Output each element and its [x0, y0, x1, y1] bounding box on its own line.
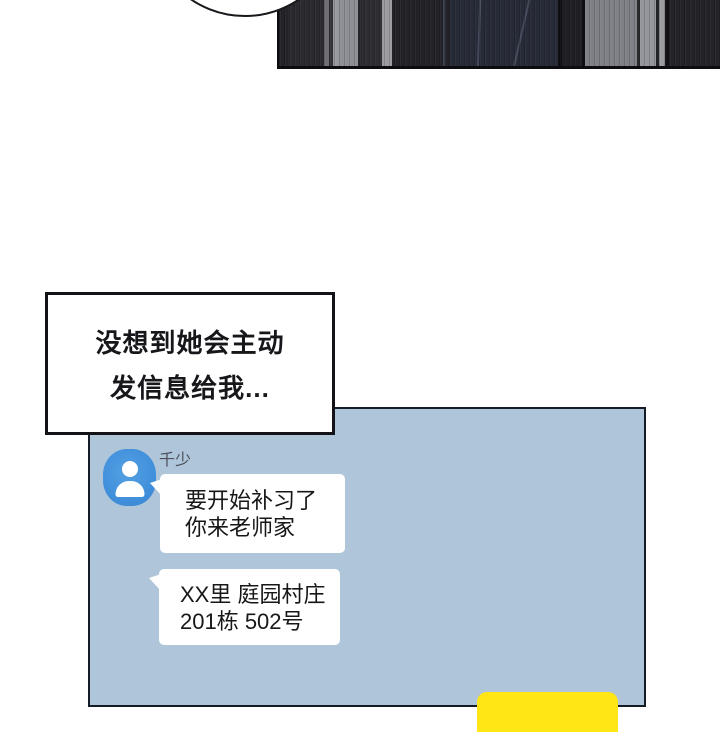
message-line: 要开始补习了 [185, 487, 345, 514]
sender-name: 千少 [159, 446, 191, 470]
chat-message-received: 要开始补习了 你来老师家 [160, 474, 345, 553]
person-icon-body [115, 481, 144, 497]
thought-line: 发信息给我... [48, 368, 332, 405]
comic-page: 没想到她会主动 发信息给我... 千少 要开始补习了 你来老师家 XX里 庭园村… [0, 0, 720, 700]
art-texture [279, 0, 720, 66]
thought-bubble: 没想到她会主动 发信息给我... [45, 292, 335, 435]
message-line: 201栋 502号 [180, 608, 340, 635]
chat-message-received: XX里 庭园村庄 201栋 502号 [159, 569, 340, 645]
chat-panel: 千少 要开始补习了 你来老师家 XX里 庭园村庄 201栋 502号 [88, 407, 646, 707]
message-line: XX里 庭园村庄 [180, 581, 340, 608]
avatar [103, 449, 156, 506]
top-art-panel [277, 0, 720, 69]
person-icon [103, 449, 156, 506]
message-line: 你来老师家 [185, 514, 345, 541]
thought-line: 没想到她会主动 [48, 323, 332, 360]
chat-message-sent-partial [477, 692, 618, 732]
person-icon-head [122, 461, 138, 477]
